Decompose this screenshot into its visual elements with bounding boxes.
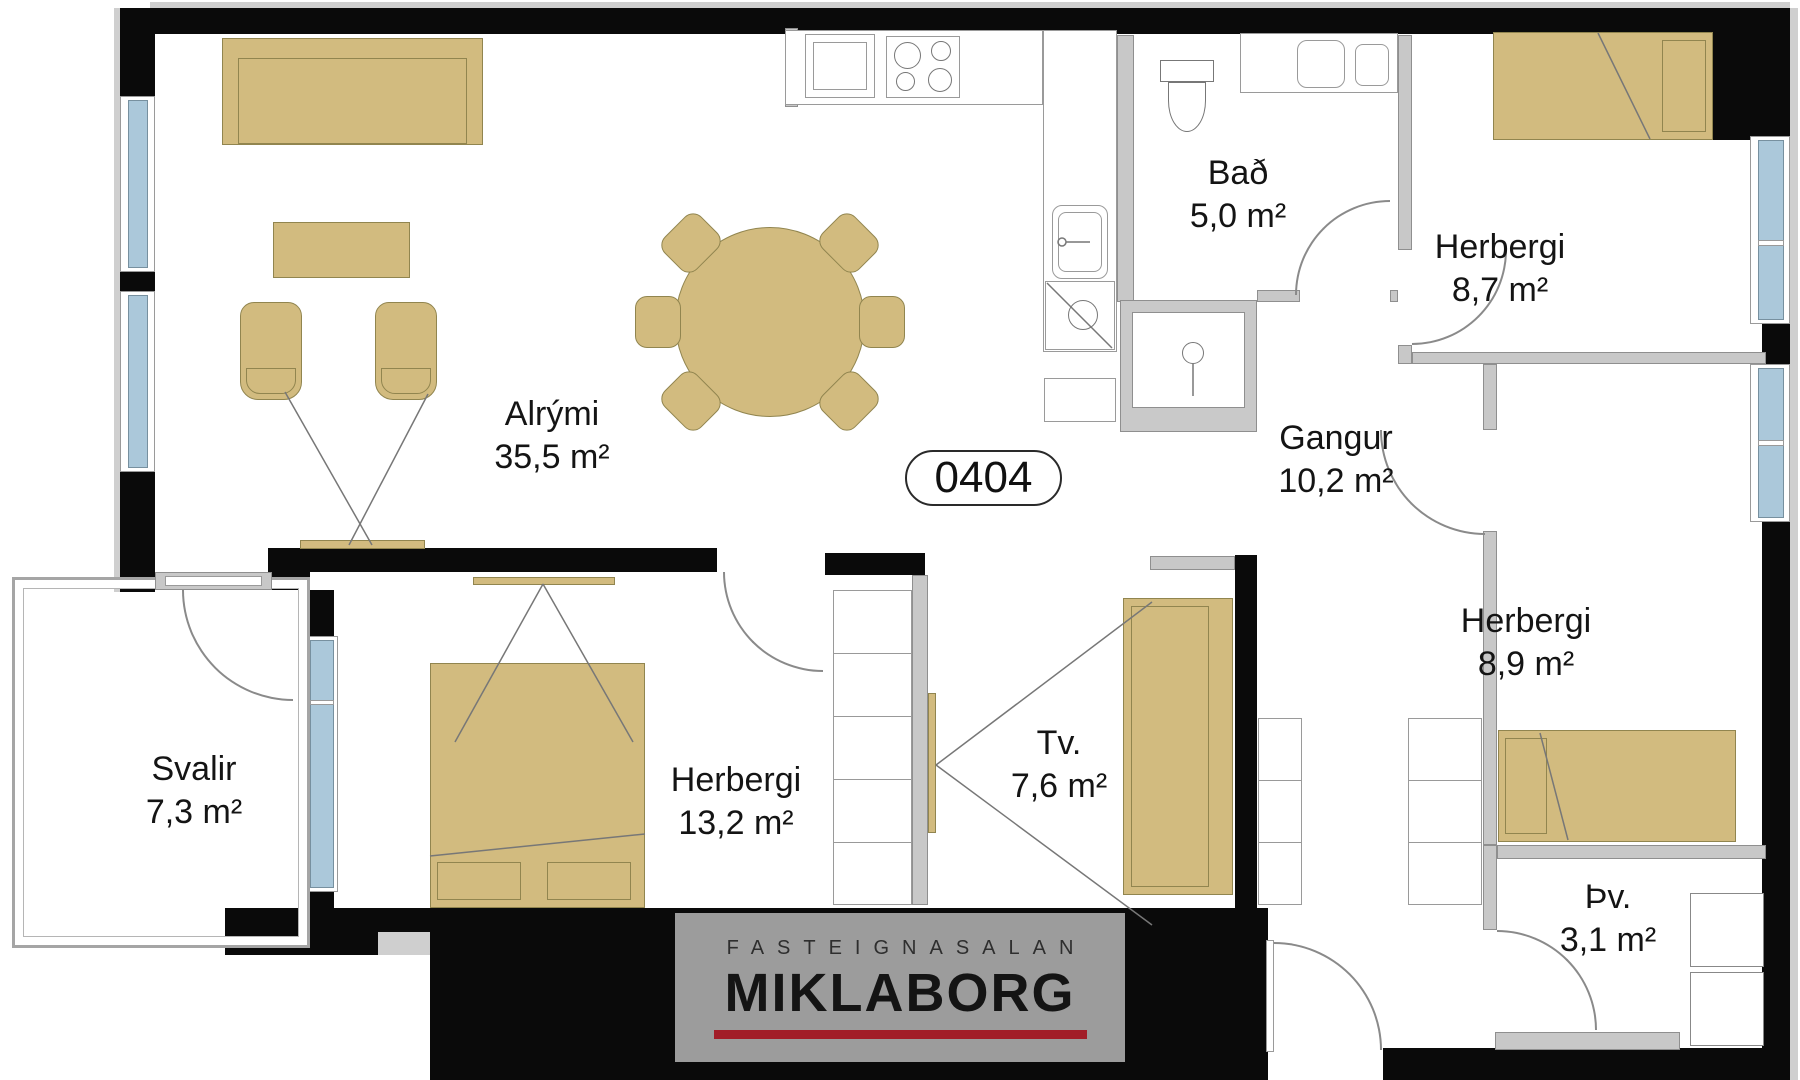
wall-segment [1398, 345, 1412, 364]
wall-segment [1150, 556, 1235, 570]
window [128, 295, 148, 468]
room-name: Herbergi [1416, 600, 1636, 643]
armchair-seat-line [381, 368, 431, 394]
room-label-herbergi-8-7: Herbergi 8,7 m² [1390, 226, 1610, 312]
wall-trim [378, 932, 430, 955]
room-area: 7,3 m² [104, 791, 284, 834]
bedroom-13-2-door-swing-arc [723, 572, 823, 672]
wardrobe [1258, 718, 1302, 905]
room-name: Svalir [104, 748, 284, 791]
coffee-table [273, 222, 410, 278]
wall-segment [1483, 531, 1497, 845]
window [128, 100, 148, 268]
toilet-bowl [1168, 82, 1206, 132]
room-area: 35,5 m² [432, 436, 672, 479]
exterior-trim [1790, 8, 1798, 1080]
logo-subtitle: FASTEIGNASALAN [675, 937, 1125, 960]
window-pane-divider [1758, 240, 1784, 246]
dryer [1690, 972, 1764, 1046]
wall-segment [1398, 35, 1412, 250]
room-label-tv: Tv. 7,6 m² [969, 722, 1149, 808]
wardrobe-rail [473, 577, 615, 585]
tv-sightline [349, 394, 428, 545]
wall-segment [310, 590, 334, 640]
wall-segment [120, 8, 155, 100]
wall-segment [1257, 290, 1300, 302]
bath-sink [1355, 44, 1389, 86]
room-area: 3,1 m² [1518, 919, 1698, 962]
wall-segment [825, 553, 925, 575]
room-label-svalir: Svalir 7,3 m² [104, 748, 284, 834]
tv-bench [300, 540, 425, 549]
toilet-tank [1160, 60, 1214, 82]
tv-sightline [285, 392, 372, 545]
wall-segment [1762, 320, 1790, 368]
balcony-door-leaf [165, 576, 262, 586]
room-area: 10,2 m² [1226, 460, 1446, 503]
wall-segment [1383, 1048, 1790, 1080]
room-area: 13,2 m² [626, 802, 846, 845]
room-name: Tv. [969, 722, 1149, 765]
logo-title: MIKLABORG [675, 962, 1125, 1024]
stove-burner-icon [931, 41, 951, 61]
wall-segment [1483, 845, 1497, 930]
dining-chair [635, 296, 681, 348]
room-name: Alrými [432, 393, 672, 436]
room-name: Bað [1148, 152, 1328, 195]
wall-segment [1235, 555, 1257, 908]
wall-segment [1483, 364, 1497, 430]
washing-machine [1297, 40, 1345, 88]
pillow [547, 862, 631, 900]
apartment-floor-plan: Alrými 35,5 m² Bað 5,0 m² Herbergi 8,7 m… [0, 0, 1800, 1080]
tv-screen [928, 693, 936, 833]
room-name: Herbergi [1390, 226, 1610, 269]
sofa-seat-line [238, 58, 467, 144]
wall-segment [1495, 1032, 1680, 1050]
window-pane-divider [1758, 440, 1784, 446]
logo-underline [714, 1030, 1087, 1039]
pillow [1662, 40, 1706, 132]
miklaborg-logo: FASTEIGNASALAN MIKLABORG [675, 913, 1125, 1062]
room-label-herbergi-13-2: Herbergi 13,2 m² [626, 759, 846, 845]
entry-door-leaf [1266, 940, 1274, 1052]
wardrobe [1408, 718, 1482, 905]
room-label-alrymi: Alrými 35,5 m² [432, 393, 672, 479]
kitchen-sink-basin [1058, 212, 1102, 272]
room-area: 8,9 m² [1416, 643, 1636, 686]
stove-burner-icon [896, 72, 915, 91]
room-name: Þv. [1518, 876, 1698, 919]
dining-chair [859, 296, 905, 348]
room-label-thvottahus: Þv. 3,1 m² [1518, 876, 1698, 962]
stove-burner-icon [894, 42, 921, 69]
unit-number: 0404 [935, 453, 1033, 503]
wall-segment [1117, 35, 1134, 302]
window-pane-divider [310, 700, 334, 705]
pillow [437, 862, 521, 900]
wall-segment [120, 468, 155, 592]
room-label-gangur: Gangur 10,2 m² [1226, 417, 1446, 503]
room-label-bad: Bað 5,0 m² [1148, 152, 1328, 238]
room-name: Herbergi [626, 759, 846, 802]
wall-segment [1762, 518, 1790, 1080]
wall-segment [1412, 352, 1766, 364]
wall-segment [1713, 8, 1790, 140]
window [310, 640, 334, 888]
room-area: 5,0 m² [1148, 195, 1328, 238]
kitchen-cabinet [1044, 378, 1116, 422]
dishwasher-dial-icon [1068, 300, 1098, 330]
room-area: 7,6 m² [969, 765, 1149, 808]
shower-head-icon [1182, 342, 1204, 364]
window [1758, 140, 1784, 320]
room-label-herbergi-8-9: Herbergi 8,9 m² [1416, 600, 1636, 686]
pillow [1505, 738, 1547, 834]
room-area: 8,7 m² [1390, 269, 1610, 312]
stove-burner-icon [928, 68, 952, 92]
fridge-inner [813, 42, 867, 90]
washer [1690, 893, 1764, 967]
wall-segment [1497, 845, 1766, 859]
wardrobe [833, 590, 912, 905]
unit-number-badge: 0404 [905, 450, 1062, 506]
room-name: Gangur [1226, 417, 1446, 460]
wall-segment [268, 548, 717, 572]
wall-segment [912, 575, 928, 905]
armchair-seat-line [246, 368, 296, 394]
